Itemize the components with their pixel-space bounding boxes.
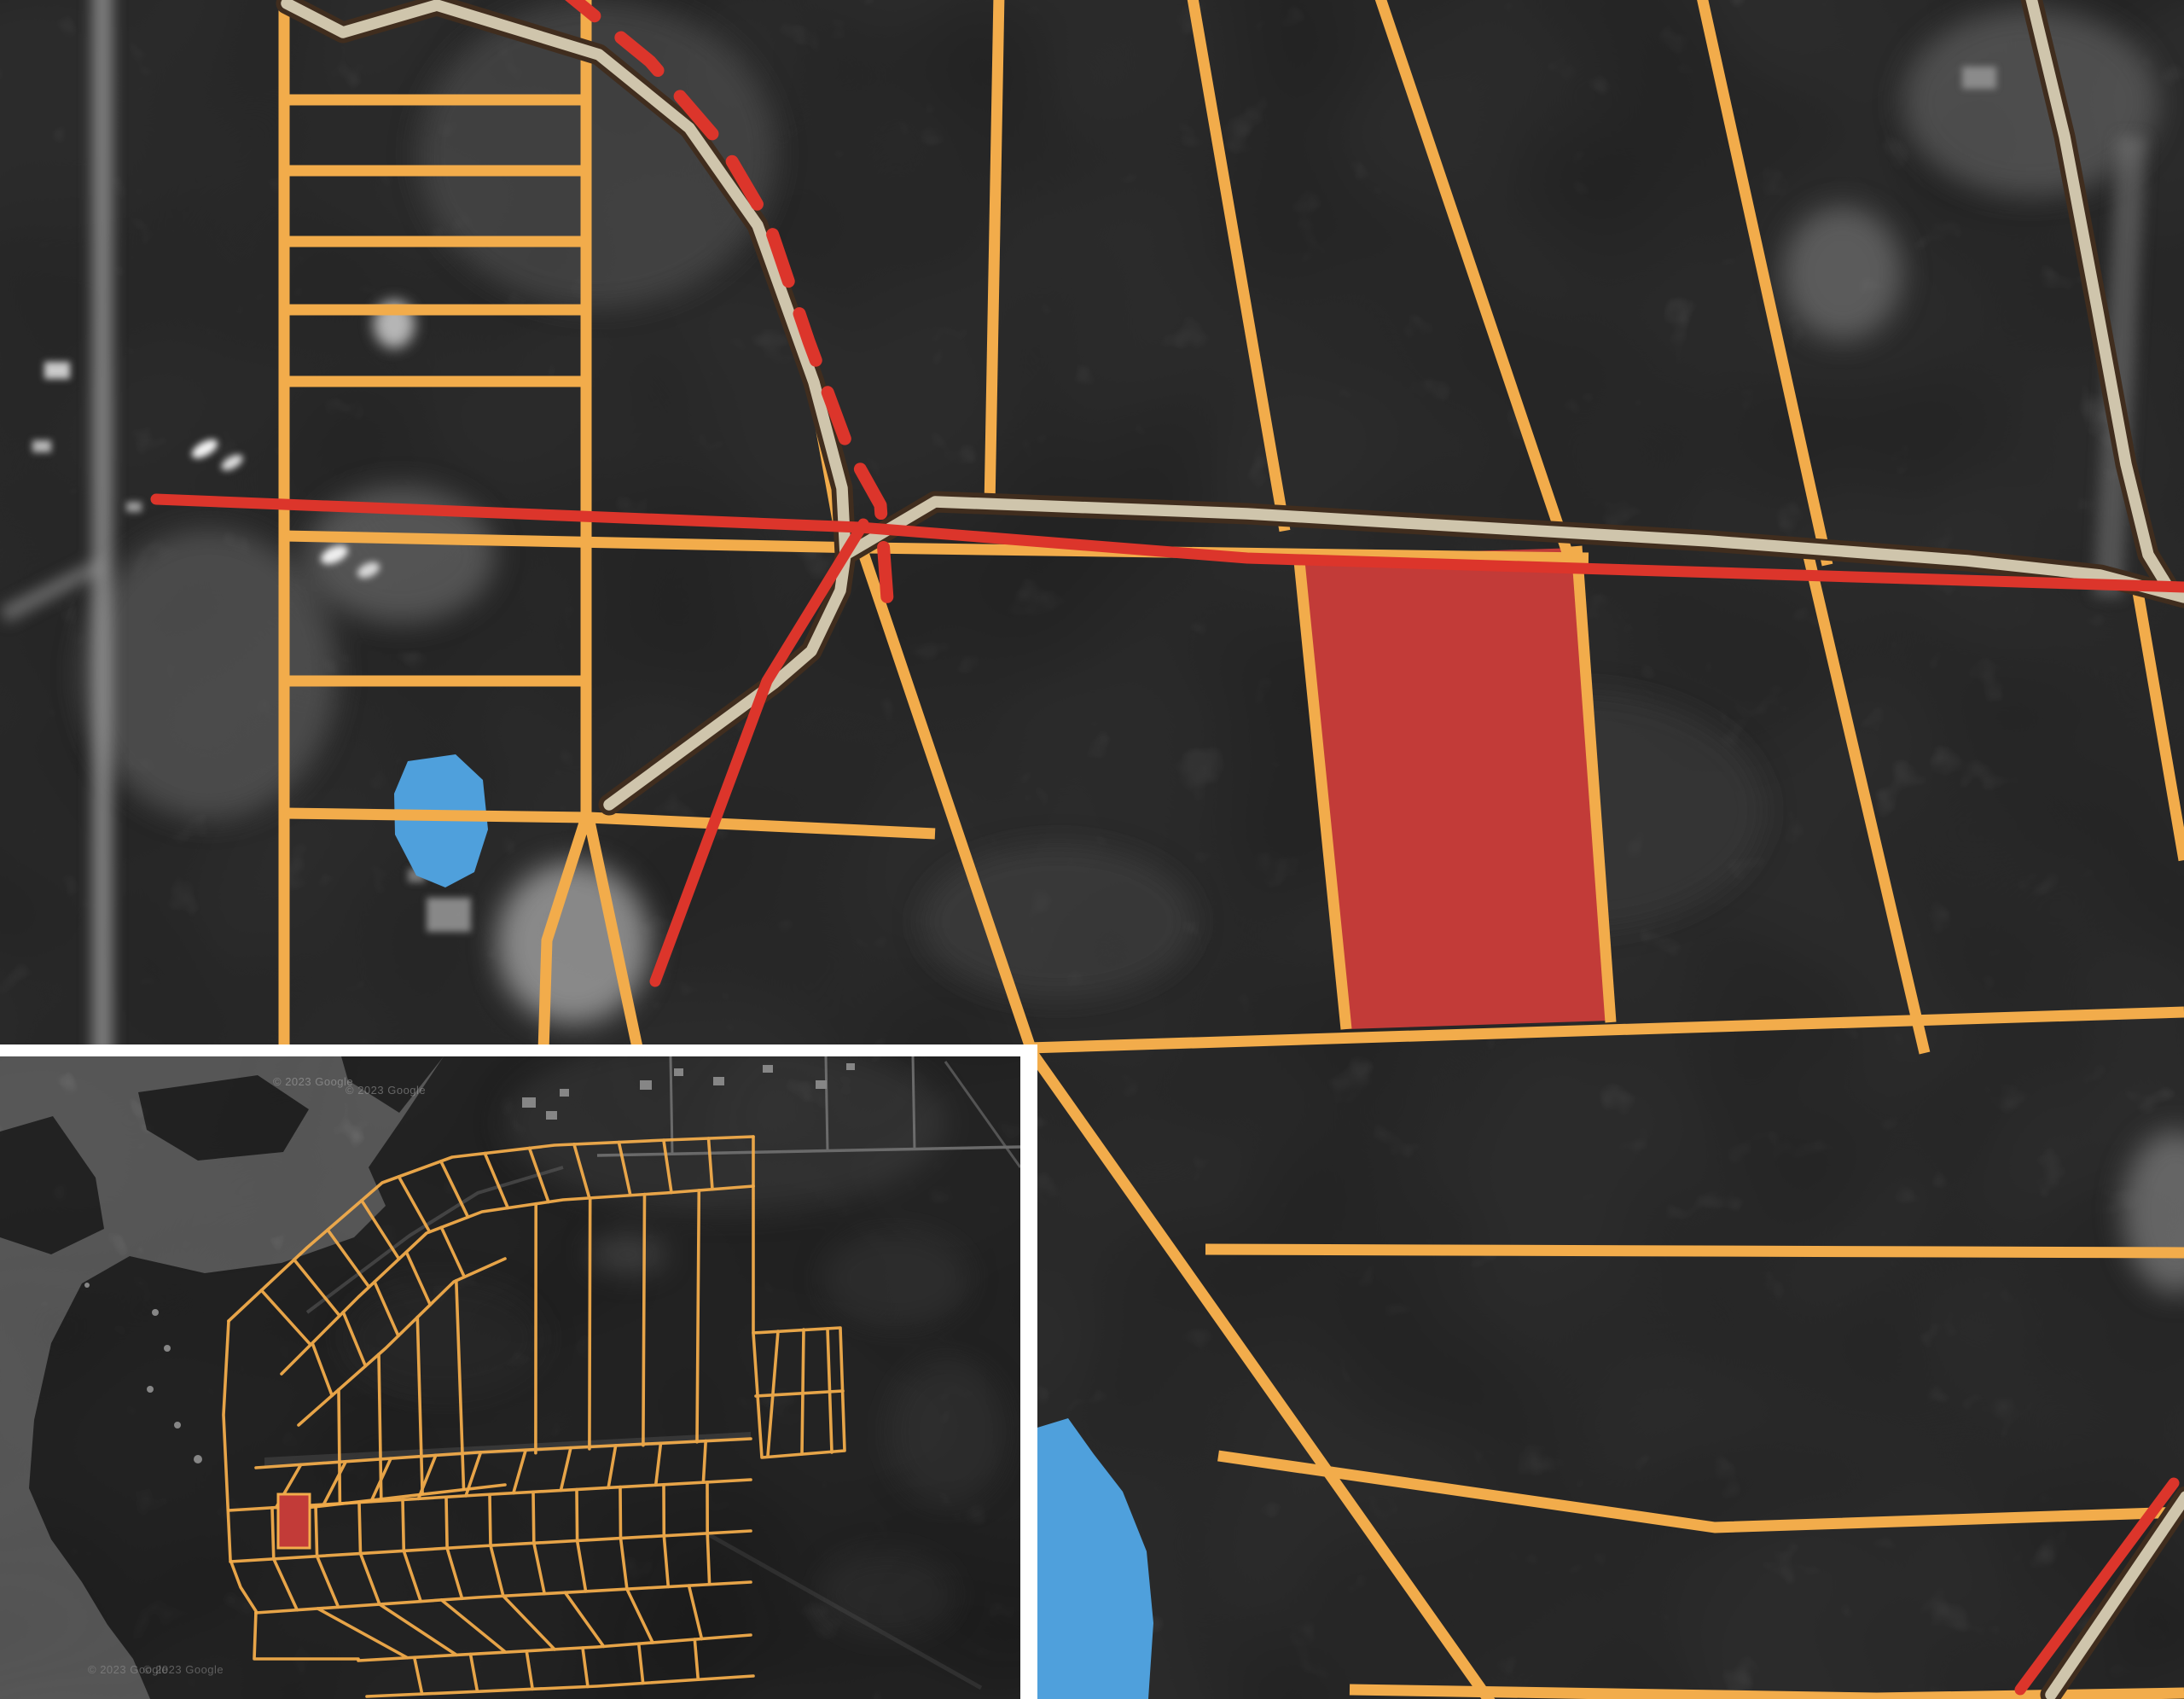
inset-aerial: © 2023 Google © 2023 Google © 2023 Googl… [0, 1033, 1020, 1699]
map-canvas[interactable]: © 2023 Google © 2023 Google © 2023 Googl… [0, 0, 2184, 1699]
inset-watermark: © 2023 Google [273, 1075, 353, 1088]
aerial-road-strip [92, 0, 113, 1101]
inset-watermark: © 2023 Google [346, 1084, 426, 1097]
selected-parcel[interactable] [1298, 548, 1611, 1029]
inset-overview[interactable]: © 2023 Google © 2023 Google © 2023 Googl… [0, 1033, 1037, 1699]
inset-selected-parcel[interactable] [278, 1494, 310, 1548]
map-viewport[interactable]: © 2023 Google © 2023 Google © 2023 Googl… [0, 0, 2184, 1699]
inset-watermark: © 2023 Google [143, 1663, 224, 1676]
